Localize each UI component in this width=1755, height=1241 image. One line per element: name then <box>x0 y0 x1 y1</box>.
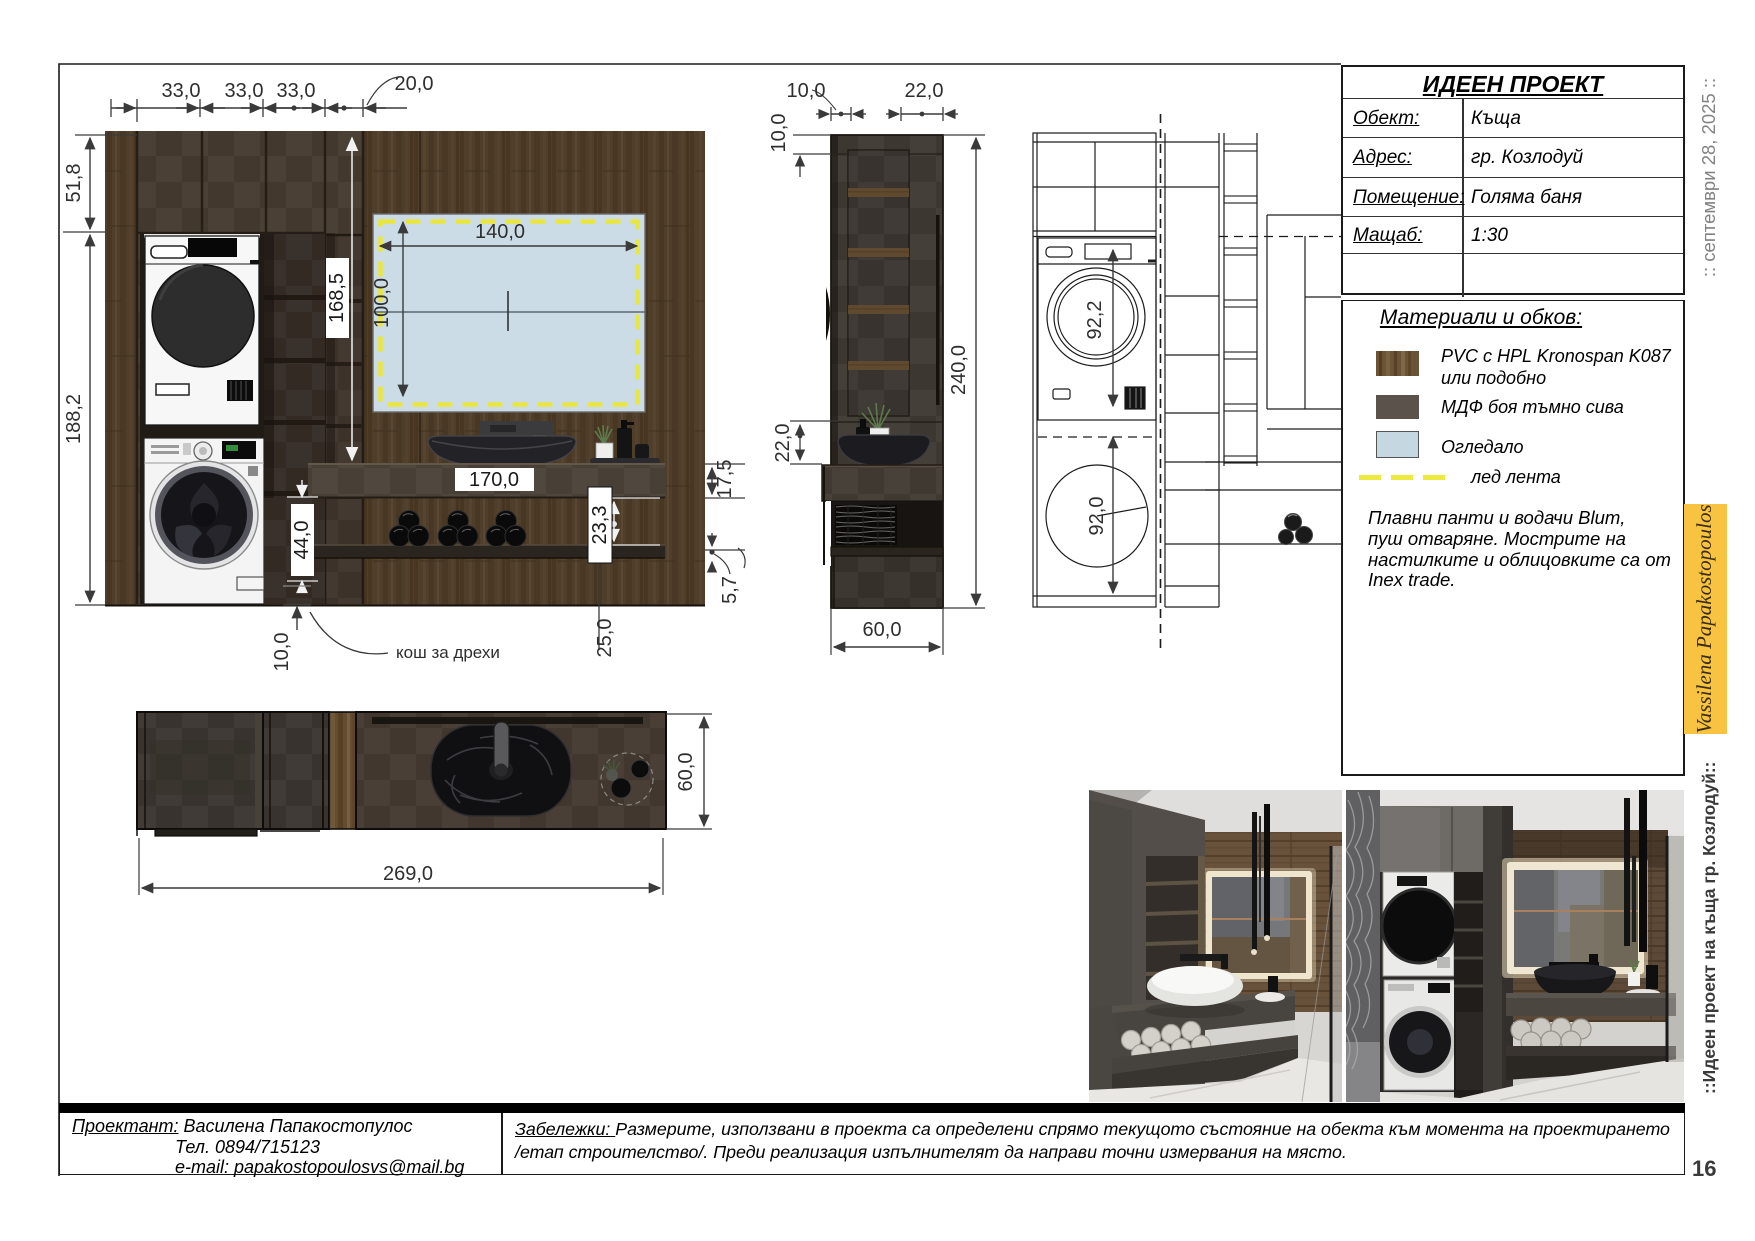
svg-text:33,0: 33,0 <box>277 80 316 102</box>
svg-text:кош за дрехи: кош за дрехи <box>396 643 500 662</box>
svg-text:170,0: 170,0 <box>469 469 519 491</box>
svg-text:44,0: 44,0 <box>291 521 313 560</box>
svg-text:10,0: 10,0 <box>787 80 826 102</box>
svg-text:23,3: 23,3 <box>589 506 611 545</box>
svg-text:60,0: 60,0 <box>863 619 902 641</box>
svg-text:20,0: 20,0 <box>395 73 434 95</box>
svg-text:33,0: 33,0 <box>225 80 264 102</box>
svg-text:25,0: 25,0 <box>594 619 616 658</box>
svg-text:60,0: 60,0 <box>675 753 697 792</box>
svg-text:33,0: 33,0 <box>162 80 201 102</box>
svg-text:5,7: 5,7 <box>719 576 741 604</box>
svg-text:269,0: 269,0 <box>383 863 433 885</box>
svg-text:92,2: 92,2 <box>1084 301 1106 340</box>
svg-text:100,0: 100,0 <box>371 278 393 328</box>
svg-text:10,0: 10,0 <box>271 633 293 672</box>
svg-text:17,5: 17,5 <box>714 460 736 499</box>
svg-text:240,0: 240,0 <box>948 345 970 395</box>
svg-text:22,0: 22,0 <box>772 424 794 463</box>
svg-text:140,0: 140,0 <box>475 221 525 243</box>
svg-text:168,5: 168,5 <box>326 273 348 323</box>
svg-text:22,0: 22,0 <box>905 80 944 102</box>
svg-text:92,0: 92,0 <box>1086 497 1108 536</box>
svg-text:10,0: 10,0 <box>768 114 790 153</box>
svg-text:188,2: 188,2 <box>63 394 85 444</box>
svg-text:51,8: 51,8 <box>63 164 85 203</box>
